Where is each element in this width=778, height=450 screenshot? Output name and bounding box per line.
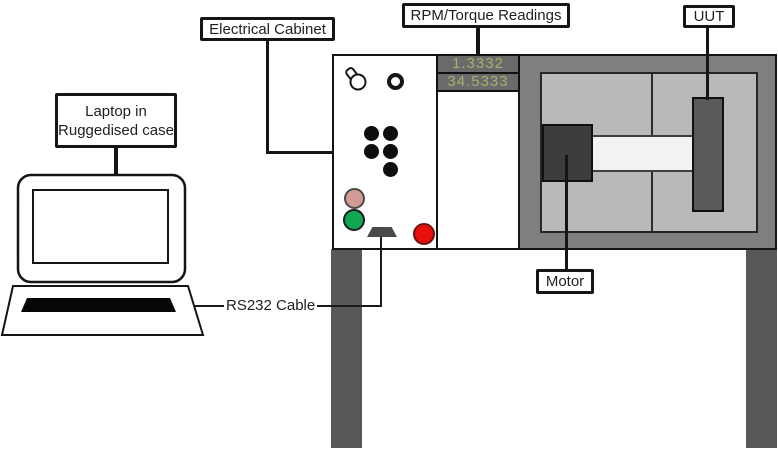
electrical-cabinet-callout-line <box>266 40 269 154</box>
electrical-cabinet-callout-line <box>266 151 332 154</box>
bench-leg-right <box>746 249 777 448</box>
uut-block <box>692 97 724 212</box>
rs232-cable-line <box>317 305 381 307</box>
laptop-label-line2: Ruggedised case <box>58 121 174 140</box>
laptop-label: Laptop in Ruggedised case <box>55 93 177 148</box>
ring-indicator-icon <box>387 73 404 90</box>
red-stop-button <box>413 223 435 245</box>
rs232-cable-line <box>195 305 224 307</box>
rpm-torque-readings-label: RPM/Torque Readings <box>402 3 570 28</box>
uut-label: UUT <box>683 5 735 28</box>
drive-shaft <box>591 135 695 172</box>
laptop-label-line1: Laptop in <box>85 102 147 121</box>
black-button-grid <box>364 144 379 159</box>
uut-callout-line <box>706 27 709 100</box>
bench-leg-left <box>331 249 362 448</box>
green-status-button <box>343 209 365 231</box>
rpm-torque-display-bottom: 34.5333 <box>436 72 520 92</box>
black-button-grid <box>383 126 398 141</box>
motor-label: Motor <box>536 269 594 294</box>
laptop-drawing <box>0 170 210 340</box>
rs232-cable-label: RS232 Cable <box>226 297 315 314</box>
rotary-knob-icon <box>342 62 376 98</box>
black-button-grid <box>383 144 398 159</box>
black-button-grid <box>364 126 379 141</box>
motor-callout-line <box>565 155 568 270</box>
black-button-grid <box>383 162 398 177</box>
laptop-callout-line <box>114 147 118 176</box>
test-rig-diagram: 1.3332 34.5333 RS232 Cable Electrical Ca… <box>0 0 778 450</box>
rs232-cable-line <box>380 237 382 307</box>
rpm-torque-callout-line <box>476 27 480 56</box>
pink-status-button <box>344 188 365 209</box>
rpm-torque-display-top: 1.3332 <box>436 54 520 74</box>
electrical-cabinet-label: Electrical Cabinet <box>200 17 335 41</box>
